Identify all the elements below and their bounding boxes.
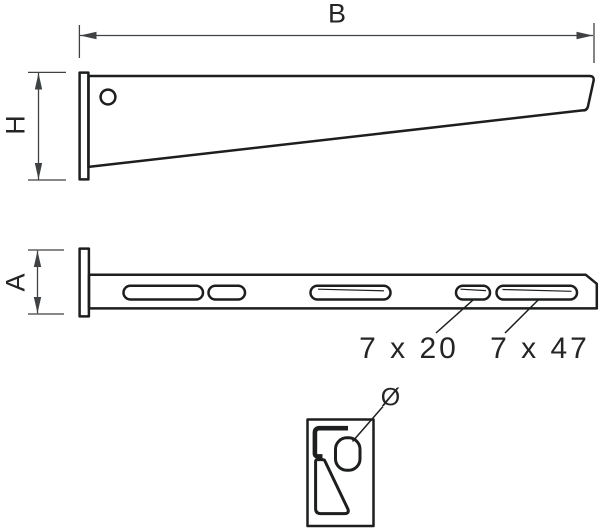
arrow-up-icon	[35, 73, 42, 90]
gusset-section	[316, 460, 349, 514]
bracket-arm-profile	[89, 76, 594, 167]
wall-plate-front	[80, 73, 89, 180]
bracket-drawing-svg: B H A	[0, 0, 600, 529]
slot-long-1	[124, 286, 204, 300]
leader-line-slot-large	[505, 300, 539, 333]
arrow-up-icon	[34, 251, 41, 267]
detail-outline-box	[308, 420, 374, 527]
arrow-right-icon	[577, 32, 594, 39]
arrow-down-icon	[35, 163, 42, 180]
plan-view: A 7 x 20 7 x 47	[1, 249, 597, 365]
mounting-hole	[101, 90, 116, 105]
slot-hole-oval	[336, 438, 361, 471]
dimension-h-label: H	[1, 115, 31, 135]
dimension-b-label: B	[328, 0, 346, 29]
slot-short-2	[456, 286, 490, 300]
leader-line-slot-small	[436, 300, 474, 333]
diameter-label: Ø	[381, 384, 400, 412]
wall-plate-top	[80, 249, 89, 317]
dimension-b: B	[79, 0, 594, 63]
slot-inner-edge	[461, 289, 487, 290]
arrow-down-icon	[34, 297, 41, 313]
slot-inner-edge	[318, 289, 384, 291]
slot-short-1	[209, 286, 246, 300]
diameter-leader-line	[353, 407, 384, 442]
arrow-left-icon	[80, 32, 97, 39]
dimension-a-label: A	[1, 273, 31, 291]
section-detail: Ø	[308, 384, 401, 527]
profile-flange-section	[315, 428, 348, 456]
slot-inner-edge	[503, 290, 572, 292]
slot-long-3	[497, 286, 578, 300]
slot-long-2	[311, 286, 391, 300]
technical-drawing-canvas: B H A	[0, 0, 600, 529]
dimension-h: H	[1, 72, 67, 180]
bracket-arm-top	[89, 275, 597, 309]
slot-size-label-large: 7 x 47	[490, 332, 590, 365]
front-view: B H	[1, 0, 595, 180]
dimension-a: A	[1, 250, 65, 314]
slot-size-label-small: 7 x 20	[359, 332, 459, 365]
